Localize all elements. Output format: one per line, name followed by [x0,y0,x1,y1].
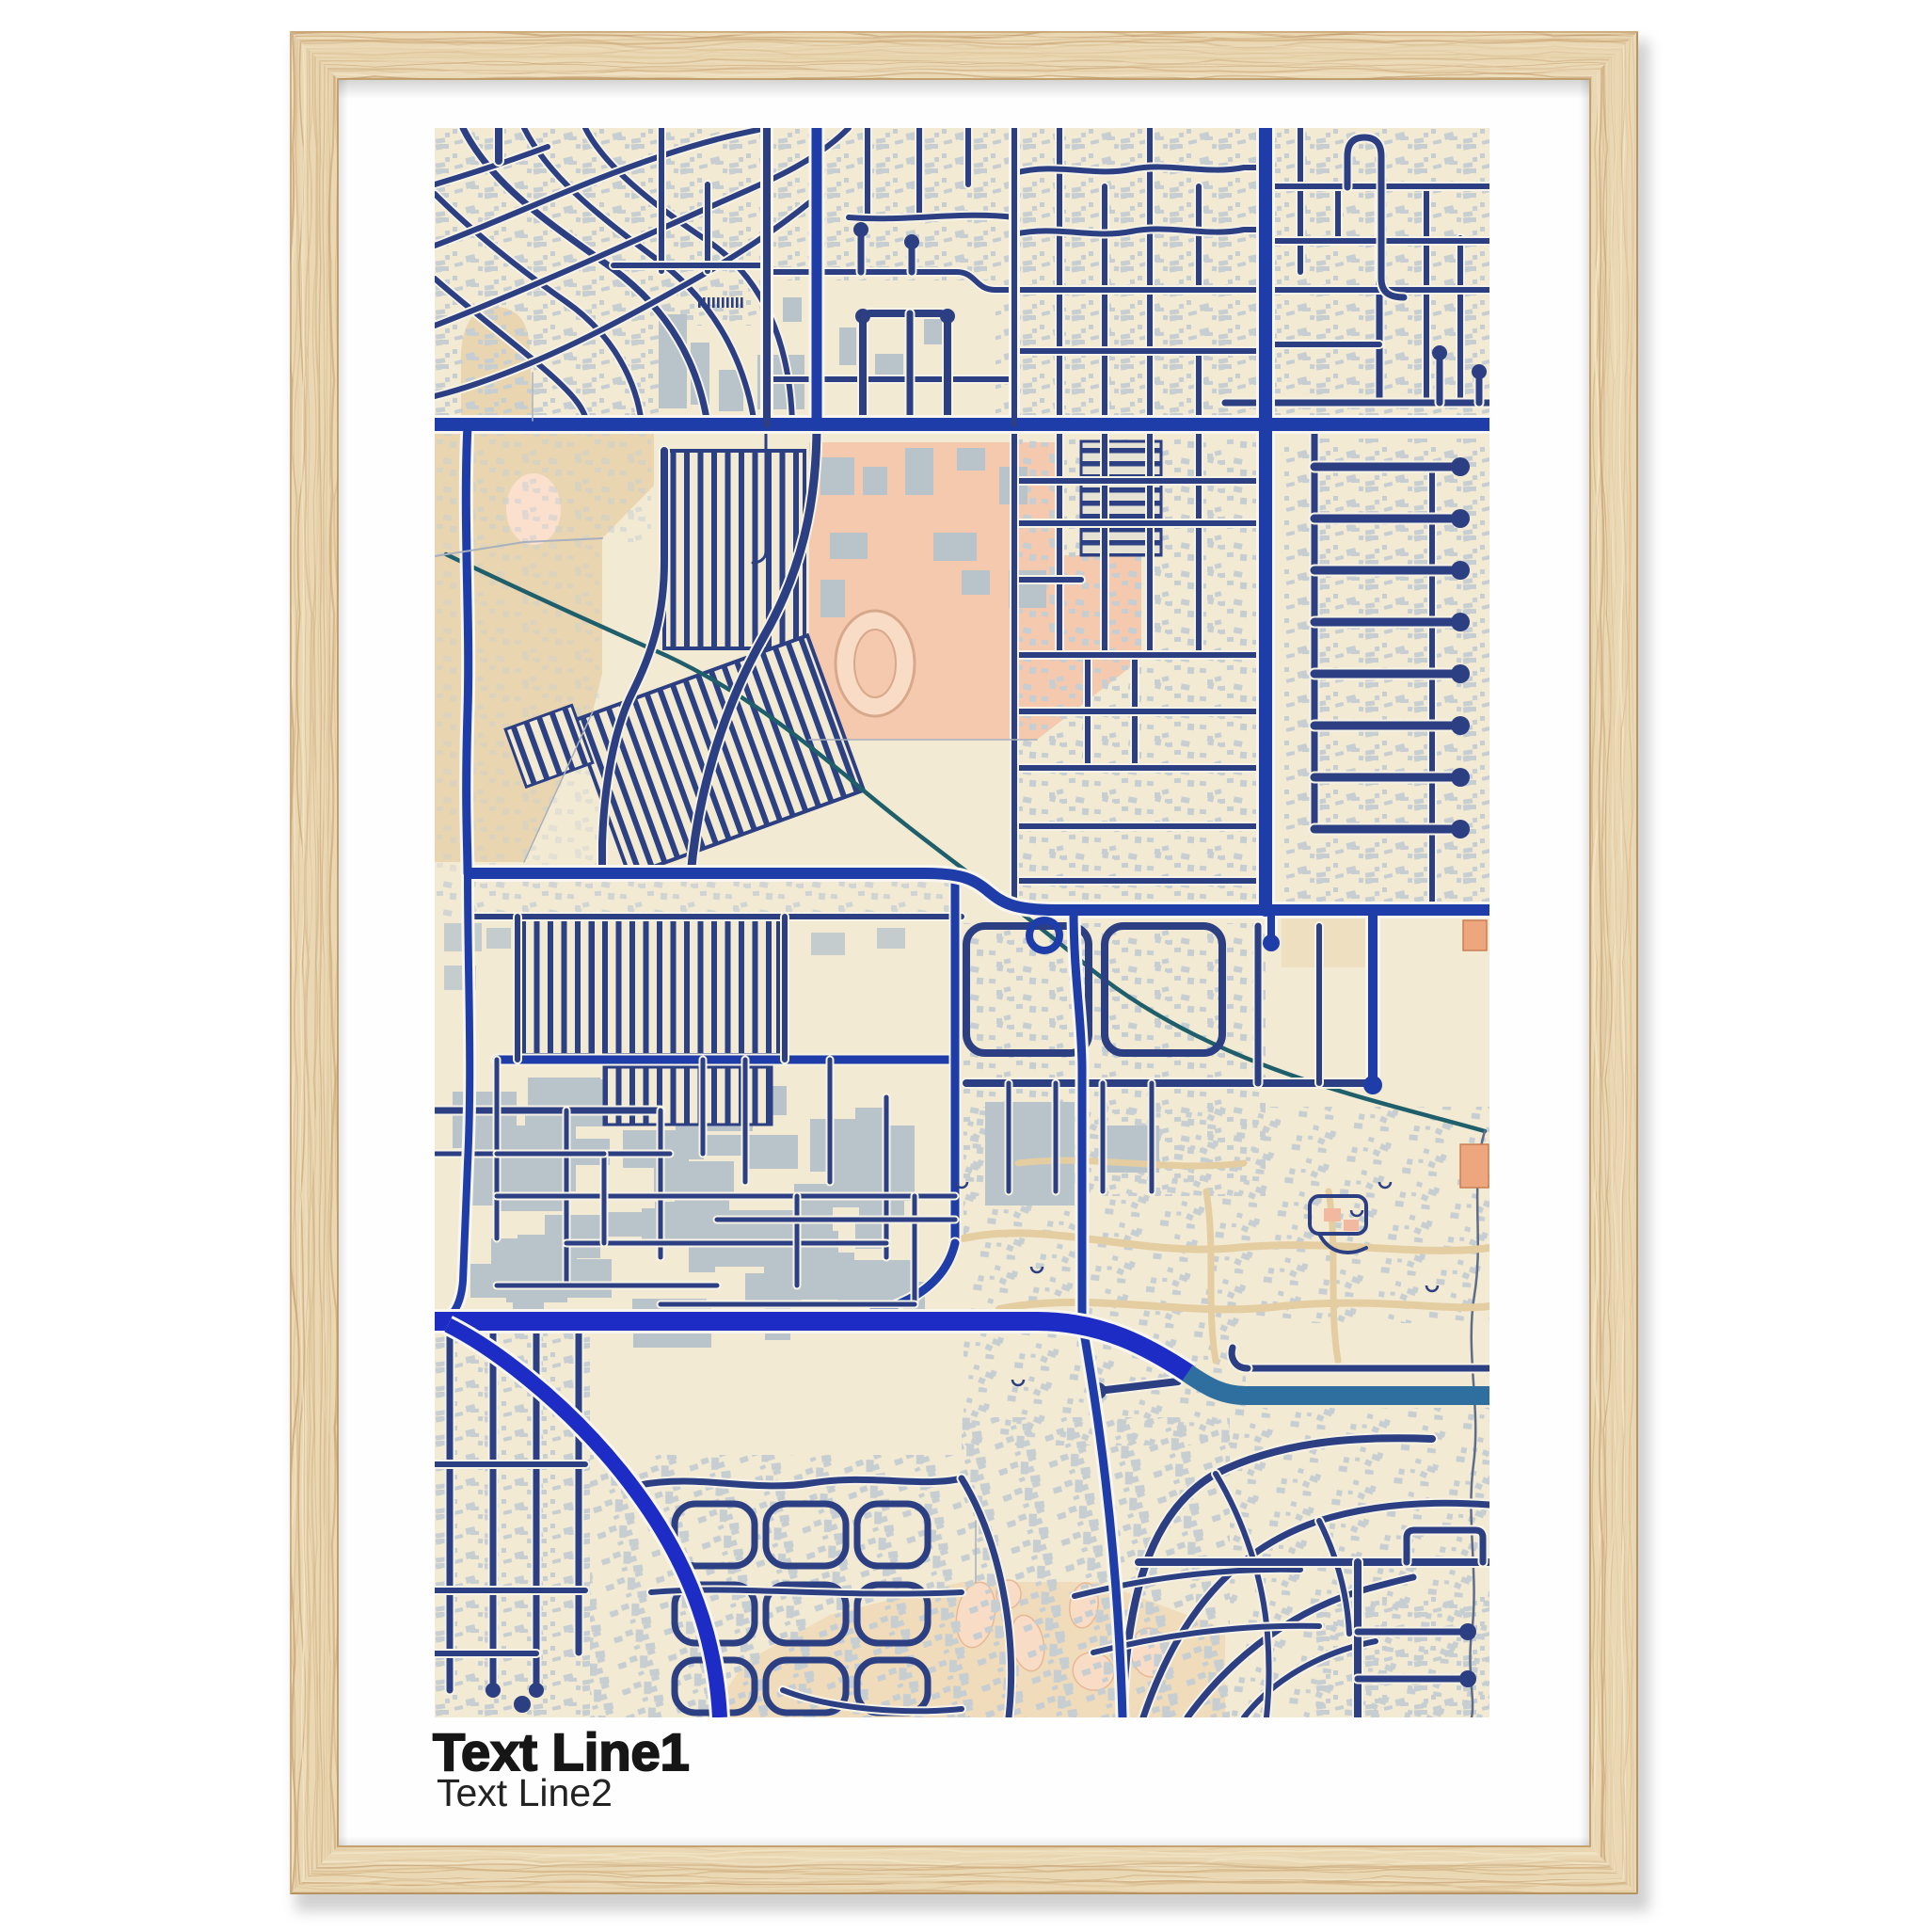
svg-text:Text Line2: Text Line2 [437,1771,613,1814]
